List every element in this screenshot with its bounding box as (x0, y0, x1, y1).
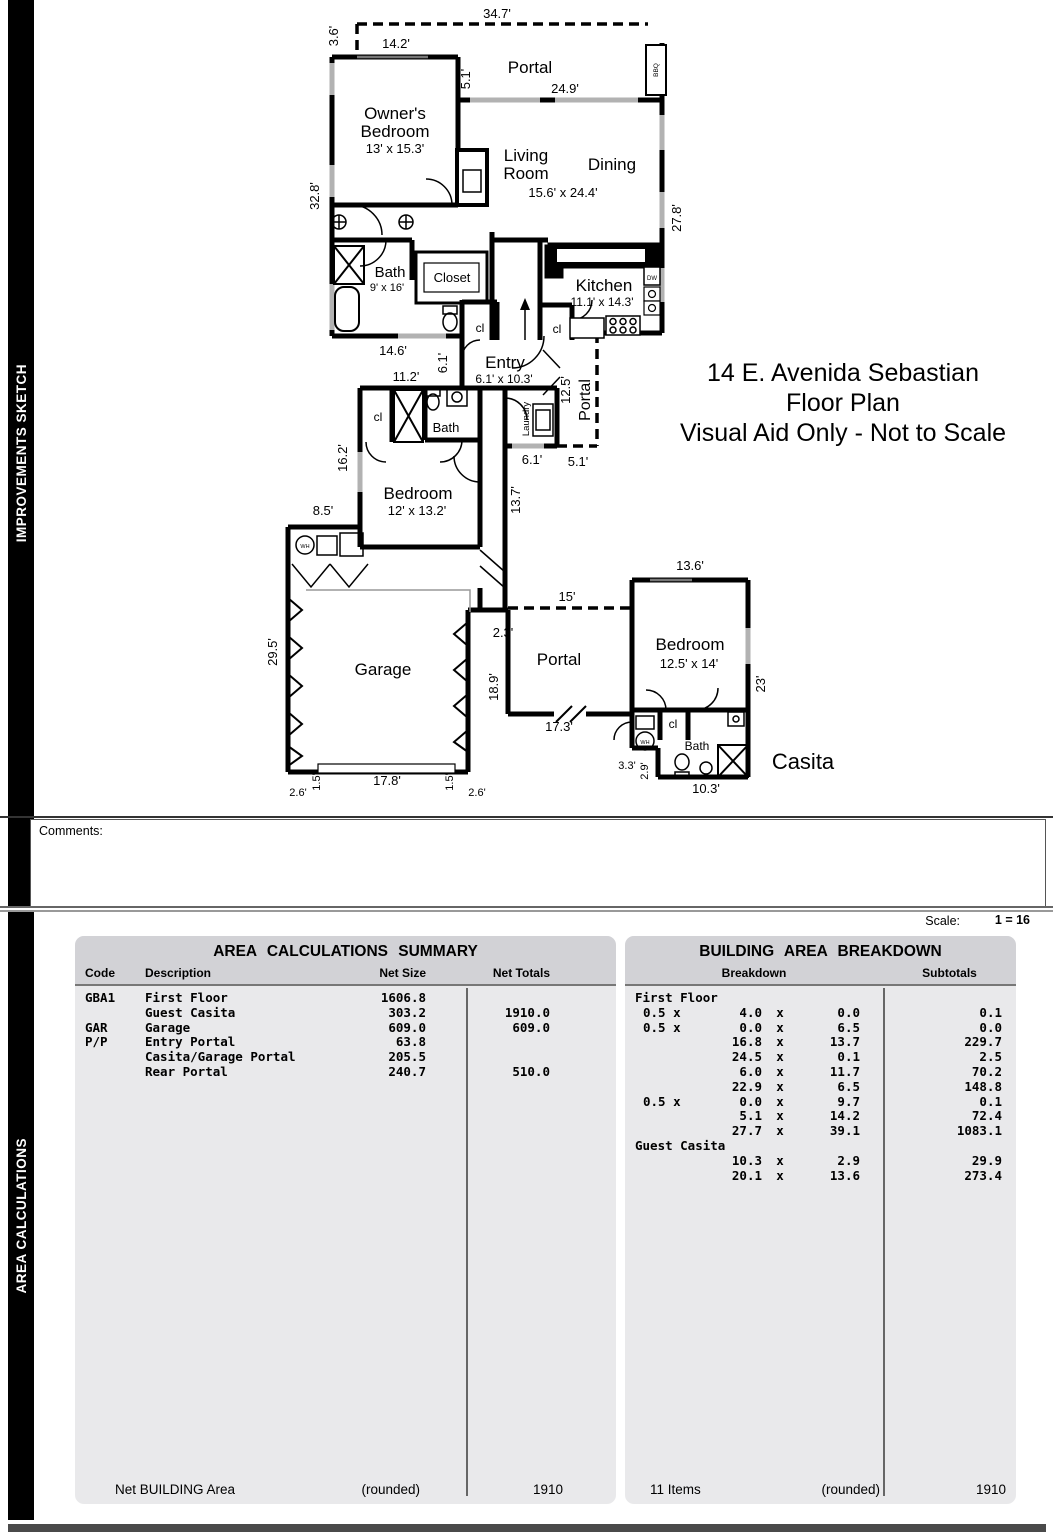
cl-entry: cl (476, 321, 485, 335)
breakdown-footer-total: 1910 (880, 1482, 1016, 1497)
room-garage: Garage (355, 660, 412, 679)
table-row: 27.7x39.11083.1 (625, 1124, 1016, 1139)
garage-door (318, 764, 455, 773)
floor-plan-svg: 34.7' 3.6' 14.2' Portal 5.1' 24.9' BBQ O… (0, 0, 1053, 812)
room-bath-2: Bath (433, 420, 460, 435)
room-laundry: Laundry (521, 402, 532, 437)
entry-arrow (520, 298, 530, 340)
table-row: Casita/Garage Portal205.5 (75, 1050, 616, 1065)
room-living-1: Living (504, 146, 548, 165)
summary-footer-total: 1910 (420, 1482, 616, 1497)
breakdown-column-headers: Breakdown Subtotals (625, 961, 1016, 980)
dim-bedroom-2: 12' x 13.2' (388, 503, 446, 518)
shower-owner (334, 246, 364, 284)
dw-label: DW (647, 276, 657, 282)
garage-interior-line (306, 590, 470, 612)
area-calculations-summary-table: AREA CALCULATIONS SUMMARY Code Descripti… (75, 936, 616, 1504)
room-bedroom-3: Bedroom (656, 635, 725, 654)
sink-box-casita (728, 712, 744, 726)
cl-casita: cl (669, 717, 678, 731)
dim-14-6: 14.6' (379, 343, 407, 358)
dim-bedroom-3: 12.5' x 14' (660, 656, 718, 671)
shower-middle (394, 390, 423, 442)
cl-middle: cl (374, 410, 383, 424)
ceiling-fixtures (332, 215, 413, 229)
dim-24-9: 24.9' (551, 81, 579, 96)
summary-footer-label: Net BUILDING Area (115, 1482, 325, 1497)
room-bedroom-2: Bedroom (384, 484, 453, 503)
comments-label: Comments: (39, 824, 103, 838)
toilet-casita (675, 754, 689, 778)
dim-16-2: 16.2' (335, 444, 350, 472)
section-row: First Floor (625, 991, 1016, 1006)
table-row: 0.5 x4.0x0.00.1 (625, 1006, 1016, 1021)
summary-divider (466, 988, 468, 1496)
dim-owners: 13' x 15.3' (366, 141, 424, 156)
plan-labels: 34.7' 3.6' 14.2' Portal 5.1' 24.9' BBQ O… (265, 6, 1006, 799)
room-kitchen: Kitchen (576, 276, 633, 295)
sink-casita (700, 762, 712, 776)
dim-5-1-mid: 5.1' (568, 454, 589, 469)
dim-kitchen: 11.1' x 14.3' (570, 295, 633, 309)
col-net-totals: Net Totals (426, 966, 550, 980)
scale-label: Scale: (905, 914, 960, 928)
dim-1-5-left: 1.5' (311, 773, 323, 790)
room-dining: Dining (588, 155, 636, 174)
dim-1-5-right: 1.5' (444, 773, 456, 790)
table-row: 20.1x13.6273.4 (625, 1169, 1016, 1184)
room-owners-2: Bedroom (361, 122, 430, 141)
col-net-size: Net Size (360, 966, 426, 980)
dim-32-8: 32.8' (307, 182, 322, 210)
dim-29-5: 29.5' (265, 638, 280, 666)
dim-entry: 6.1' x 10.3' (475, 372, 532, 386)
cl-kitchen: cl (553, 322, 562, 336)
col-description: Description (145, 966, 360, 980)
table-row: Rear Portal240.7510.0 (75, 1065, 616, 1080)
room-portal-mid: Portal (537, 650, 581, 669)
table-row: 5.1x14.272.4 (625, 1109, 1016, 1124)
summary-header: AREA CALCULATIONS SUMMARY Code Descripti… (75, 936, 616, 986)
room-owners-1: Owner's (364, 104, 426, 123)
area-calculations-bar: AREA CALCULATIONS (8, 912, 34, 1520)
dim-3-6: 3.6' (326, 26, 341, 47)
dim-12-5-portal: 12.5' (558, 376, 573, 404)
breakdown-divider (883, 988, 885, 1496)
table-row: 24.5x0.12.5 (625, 1050, 1016, 1065)
bbq-label: BBQ (653, 63, 660, 77)
kitchen-counter-top (557, 249, 645, 262)
summary-title: AREA CALCULATIONS SUMMARY (75, 936, 616, 961)
table-row: 16.8x13.7229.7 (625, 1035, 1016, 1050)
breakdown-body: First Floor 0.5 x4.0x0.00.1 0.5 x0.0x6.5… (625, 986, 1016, 1183)
summary-footer-rounded: (rounded) (325, 1482, 420, 1497)
dim-17-3: 17.3' (545, 719, 573, 734)
dim-8-5: 8.5' (313, 503, 334, 518)
stove (606, 316, 640, 335)
wh-1-label: WH (300, 544, 309, 550)
kitchen-island (570, 318, 604, 338)
plan-title-line3: Visual Aid Only - Not to Scale (680, 419, 1006, 447)
casita-cabinet (636, 716, 654, 729)
dim-6-1-mid: 6.1' (522, 452, 543, 467)
dim-11-2: 11.2' (393, 369, 420, 384)
room-portal-top: Portal (508, 58, 552, 77)
dim-10-3: 10.3' (692, 781, 720, 796)
shower-casita (718, 745, 748, 777)
room-living-2: Room (503, 164, 548, 183)
room-closet: Closet (434, 270, 471, 285)
scale-value: 1 = 16 (975, 913, 1030, 927)
table-row: Guest Casita303.21910.0 (75, 1006, 616, 1021)
dim-18-9: 18.9' (486, 673, 501, 701)
dim-27-8: 27.8' (669, 204, 684, 232)
section-divider-1 (0, 906, 1053, 908)
breakdown-footer: 11 Items (rounded) 1910 (625, 1482, 1016, 1497)
dim-2-6-right: 2.6' (468, 787, 485, 799)
breakdown-title: BUILDING AREA BREAKDOWN (625, 936, 1016, 961)
section-divider-2 (0, 910, 1053, 912)
table-row: GBA1First Floor1606.8 (75, 991, 616, 1006)
table-row: 0.5 x0.0x9.70.1 (625, 1095, 1016, 1110)
dim-14-2: 14.2' (382, 36, 410, 51)
dim-15: 15' (559, 589, 576, 604)
dim-13-7: 13.7' (508, 486, 523, 514)
dim-2-6-left: 2.6' (289, 787, 306, 799)
zigzag-wall-marks (288, 598, 468, 766)
dim-bath-1: 9' x 16' (370, 282, 404, 294)
room-entry: Entry (485, 353, 525, 372)
table-row: 22.9x6.5148.8 (625, 1080, 1016, 1095)
breakdown-footer-rounded: (rounded) (805, 1482, 880, 1497)
bathtub (335, 287, 359, 331)
wh-2-label: WH (640, 740, 649, 746)
page-bottom-rule (8, 1524, 1046, 1532)
summary-column-headers: Code Description Net Size Net Totals (75, 961, 616, 980)
col-subtotals: Subtotals (883, 966, 1016, 980)
plan-title-line1: 14 E. Avenida Sebastian (707, 359, 979, 387)
table-row: 0.5 x0.0x6.50.0 (625, 1021, 1016, 1036)
room-casita: Casita (772, 749, 835, 774)
dim-5-1-top: 5.1' (458, 69, 473, 90)
washer (317, 536, 337, 555)
building-area-breakdown-table: BUILDING AREA BREAKDOWN Breakdown Subtot… (625, 936, 1016, 1504)
table-row: GARGarage609.0609.0 (75, 1021, 616, 1036)
sink-middle (447, 388, 467, 406)
comments-field[interactable]: Comments: (30, 819, 1046, 908)
area-calculations-label: AREA CALCULATIONS (14, 1138, 29, 1294)
table-row: P/PEntry Portal63.8 (75, 1035, 616, 1050)
breakdown-header: BUILDING AREA BREAKDOWN Breakdown Subtot… (625, 936, 1016, 986)
dim-living: 15.6' x 24.4' (528, 185, 597, 200)
dim-2-9: 2.9' (639, 762, 651, 779)
dim-6-1-entry: 6.1' (435, 353, 450, 374)
summary-body: GBA1First Floor1606.8 Guest Casita303.21… (75, 986, 616, 1080)
dim-34-7: 34.7' (483, 6, 511, 21)
dim-23: 23' (753, 676, 768, 693)
dim-13-6: 13.6' (676, 558, 704, 573)
room-bath-3: Bath (685, 739, 710, 753)
table-row: 10.3x2.929.9 (625, 1154, 1016, 1169)
col-code: Code (75, 966, 145, 980)
col-breakdown: Breakdown (625, 966, 883, 980)
toilet-middle (426, 389, 440, 410)
dim-3-3: 3.3' (618, 760, 635, 772)
room-portal-right: Portal (577, 379, 594, 421)
kitchen-small-appliances (644, 287, 660, 315)
dim-17-8: 17.8' (373, 773, 401, 788)
sketch-page: IMPROVEMENTS SKETCH AREA CALCULATIONS (0, 0, 1053, 1536)
plan-title-line2: Floor Plan (786, 389, 900, 417)
room-bath-1: Bath (375, 264, 406, 281)
comments-top-rule (0, 816, 1053, 818)
toilet-owner (443, 306, 457, 331)
dim-2-3: 2.3' (493, 625, 514, 640)
summary-footer: Net BUILDING Area (rounded) 1910 (75, 1482, 616, 1497)
table-row: 6.0x11.770.2 (625, 1065, 1016, 1080)
section-row: Guest Casita (625, 1139, 1016, 1154)
breakdown-footer-label: 11 Items (650, 1482, 805, 1497)
fireplace (457, 150, 487, 205)
laundry-appliance (533, 404, 553, 436)
